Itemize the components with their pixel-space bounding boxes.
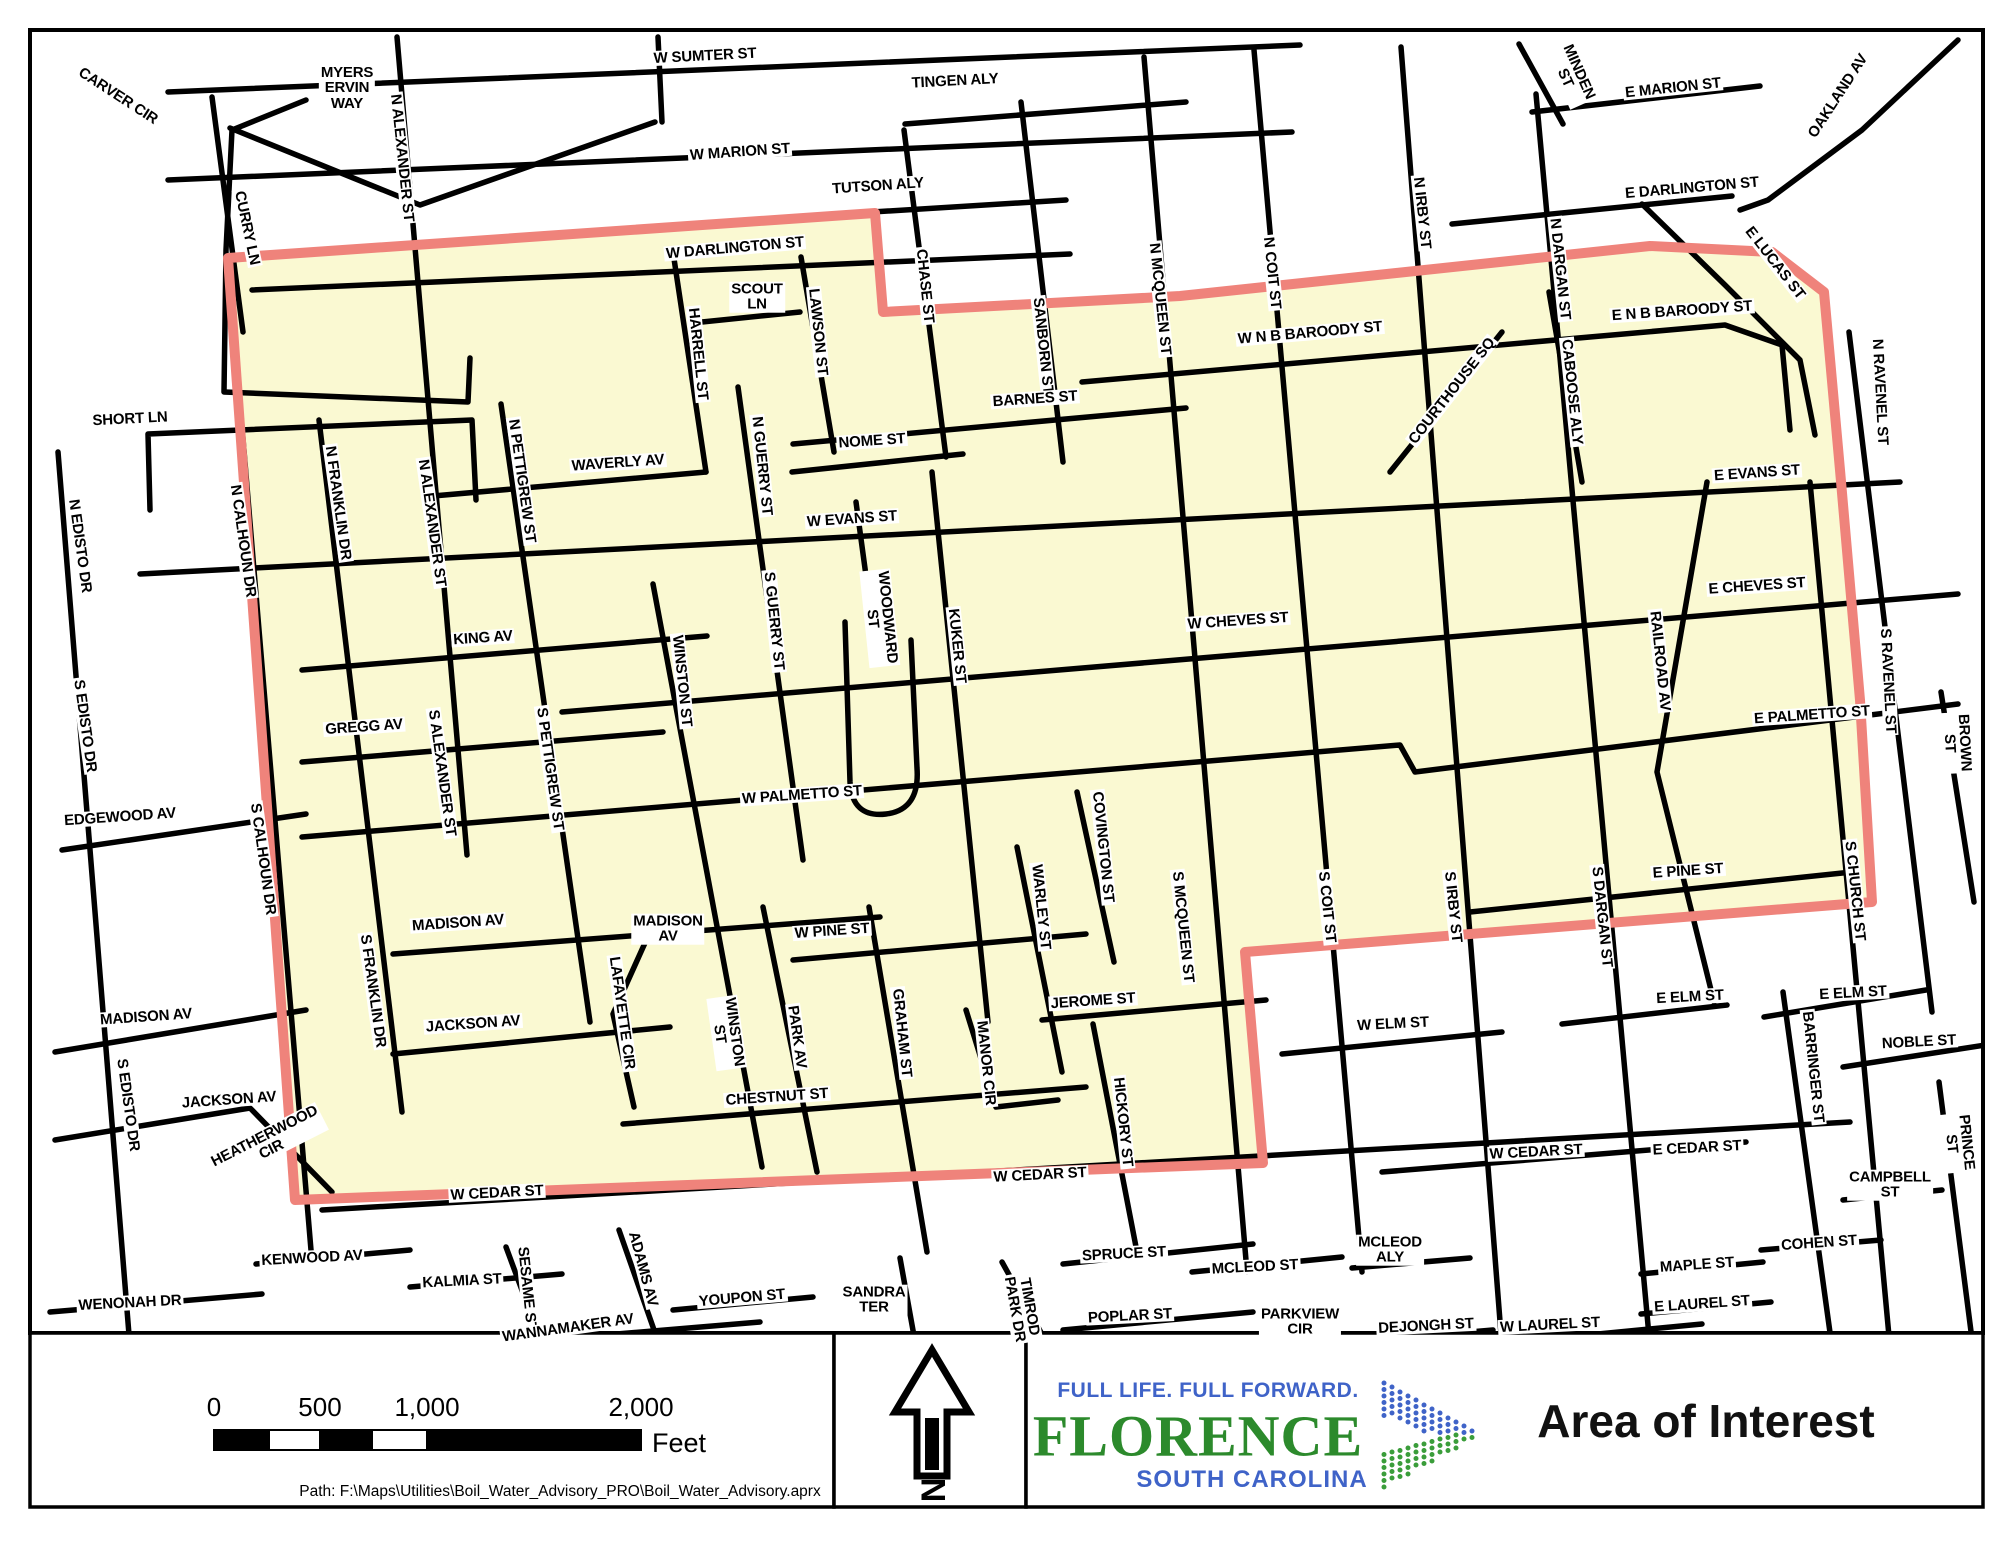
street-label: E ELM ST [1654, 987, 1726, 1006]
north-label: N [913, 1478, 952, 1503]
street-map [0, 0, 2000, 1545]
street-label: MYERS ERVIN WAY [319, 65, 375, 111]
map-document: CARVER CIRMYERS ERVIN WAYW SUMTER STTING… [0, 0, 2000, 1545]
scale-tick-label: 0 [207, 1392, 221, 1423]
scale-tick-label: 1,000 [394, 1392, 459, 1423]
street-label: SANDRA TER [841, 1285, 908, 1316]
logo-name: FLORENCE [1033, 1403, 1363, 1470]
street-label: SCOUT LN [729, 282, 785, 313]
street-label: W ELM ST [1355, 1014, 1431, 1033]
street-label: MCLEOD ALY [1356, 1235, 1424, 1266]
street-label: PRINCE ST [1941, 1112, 1978, 1174]
street-label: E ELM ST [1817, 983, 1889, 1002]
page-title: Area of Interest [1537, 1394, 1874, 1448]
street-label: NOBLE ST [1880, 1032, 1959, 1051]
north-arrow-shaft [925, 1418, 939, 1470]
file-path-text: Path: F:\Maps\Utilities\Boil_Water_Advis… [299, 1483, 820, 1501]
street-label: CAMPBELL ST [1847, 1170, 1933, 1201]
logo-chevron-icon [1378, 1380, 1488, 1490]
logo-tagline: FULL LIFE. FULL FORWARD. [1057, 1379, 1358, 1403]
scale-unit-label: Feet [652, 1428, 706, 1459]
street-label: MADISON AV [631, 914, 704, 945]
street-label: PARKVIEW CIR [1259, 1307, 1341, 1338]
logo-subtitle: SOUTH CAROLINA [1136, 1466, 1367, 1494]
scale-tick-label: 500 [298, 1392, 341, 1423]
scale-tick-label: 2,000 [608, 1392, 673, 1423]
street-label: SHORT LN [90, 409, 170, 428]
street-label: BROWN ST [1940, 712, 1974, 775]
